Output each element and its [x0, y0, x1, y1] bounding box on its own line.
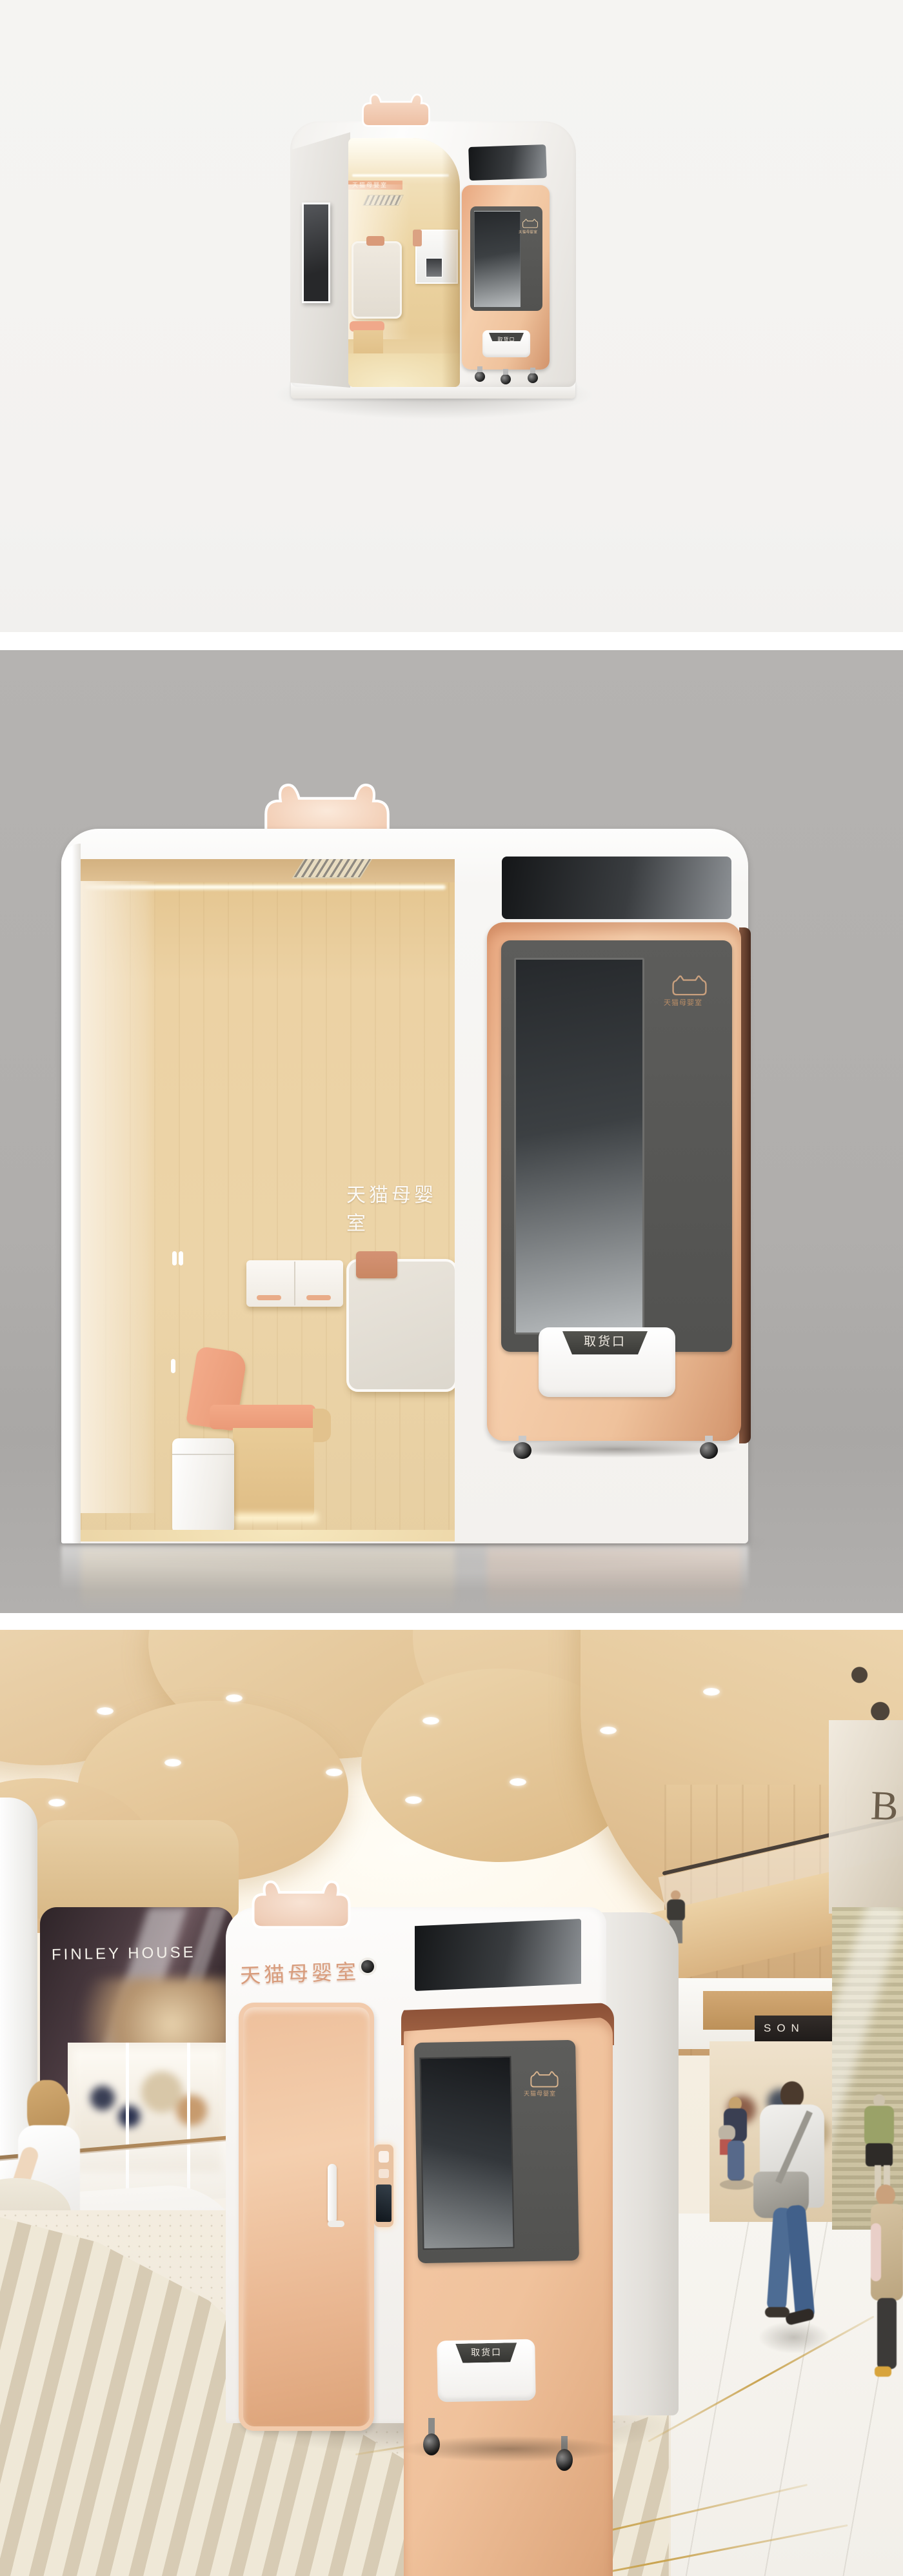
head: [671, 1890, 680, 1900]
towel-on-rail: [366, 236, 384, 246]
left-section-wall: [61, 844, 81, 1543]
downlight-icon: [164, 1759, 181, 1767]
jeans: [728, 2141, 744, 2181]
arch-shading: [442, 138, 460, 387]
person-child-beige-coat: [871, 2185, 903, 2391]
panel-top-isometric-render: 天猫母婴室 天猫母婴室 取货口: [0, 0, 903, 632]
pink-sleeve: [871, 2223, 881, 2281]
head: [876, 2185, 895, 2206]
caster-wheel-icon: [501, 374, 511, 384]
storefront-sign-text: FINLEY HOUSE: [52, 1943, 232, 1965]
machine-touchscreen: [474, 211, 521, 308]
downlight-icon: [405, 1796, 422, 1804]
downlight-icon: [703, 1688, 720, 1696]
pickup-drawer-strip: 取货口: [557, 1331, 653, 1354]
wall-cabinet-divider: [294, 1262, 295, 1305]
downlight-icon: [510, 1778, 526, 1786]
cabinet-handle: [257, 1295, 281, 1300]
machine-under-shadow: [400, 2436, 619, 2462]
booth-interior-cutaway: 天猫母婴室: [348, 138, 460, 387]
mirror-towel: [413, 230, 422, 246]
person-man-walking: [748, 2081, 832, 2378]
pickup-drawer-label: 取货口: [471, 2347, 502, 2358]
downlight-icon: [226, 1694, 243, 1702]
downlight-icon: [326, 1769, 342, 1776]
cabinet-handle: [306, 1295, 331, 1300]
vent-grille-icon: [292, 859, 373, 878]
shoe: [765, 2307, 789, 2317]
machine-logo-caption: 天猫母婴室: [519, 229, 542, 234]
booth-banner-display: [415, 1919, 581, 1991]
panel-bottom-mall-scene: FINLEY HOUSE AROLL: [0, 1630, 903, 2576]
caster-wheel-icon: [475, 372, 485, 382]
glass-monogram-letter: B: [870, 1781, 899, 1830]
interior-ceiling-slope: [81, 859, 455, 882]
tmall-cat-logo-icon: [667, 975, 712, 996]
wall-hook: [171, 1359, 175, 1373]
interior-floor: [81, 1530, 455, 1541]
machine-touchscreen: [419, 2056, 514, 2250]
downlight-icon: [422, 1717, 439, 1725]
mannequin-display: [860, 2094, 899, 2197]
changing-table-folded: [352, 241, 402, 319]
machine-touchscreen: [514, 958, 644, 1334]
floor-reflection-shell: [61, 1545, 748, 1590]
dome-camera-icon: [361, 1960, 374, 1973]
tmall-baby-care-room-composite: 天猫母婴室 天猫母婴室 取货口: [0, 0, 903, 2576]
under-seat-glow: [234, 1513, 318, 1522]
access-panel-screen: [376, 2185, 392, 2222]
downlight-icon: [97, 1707, 114, 1715]
watermark-text: 天猫母婴室: [346, 1179, 455, 1236]
trash-bin-lid-line: [172, 1454, 234, 1455]
machine-under-shadow: [493, 1441, 739, 1458]
pickup-drawer-strip: 取货口: [451, 2343, 522, 2363]
jacket: [667, 1899, 685, 1921]
machine-header-display: [502, 857, 731, 919]
mannequin-skirt: [866, 2143, 893, 2166]
towel-on-rail: [356, 1251, 397, 1278]
cat-ears-sign-icon: [360, 90, 432, 130]
occupancy-icon: [379, 2169, 389, 2178]
jeans-leg: [786, 2204, 815, 2321]
pickup-drawer-label: 取货口: [584, 1335, 626, 1349]
door-handle-foot: [328, 2221, 344, 2227]
downlight-icon: [600, 1727, 617, 1734]
tmall-cat-logo-icon: [526, 2071, 562, 2088]
mirror-tablet-screen: [426, 258, 442, 277]
occupancy-icon: [379, 2151, 389, 2163]
figure-shadow: [720, 2179, 753, 2190]
seat-cushion: [210, 1405, 315, 1429]
storefront-wood-drum: [32, 1820, 239, 1920]
pickup-drawer-strip: 取货口: [487, 333, 526, 341]
led-strip: [352, 174, 449, 177]
door-handle: [328, 2164, 337, 2223]
door-access-panel: [374, 2145, 393, 2227]
side-wall-mirror: [302, 203, 330, 303]
seat-side-arm: [313, 1409, 331, 1442]
pants: [877, 2298, 897, 2369]
wall-hook: [172, 1251, 177, 1265]
machine-header-display: [468, 144, 547, 181]
machine-logo-caption: 天猫母婴室: [664, 997, 722, 1007]
downlight-icon: [48, 1799, 65, 1807]
shutter-shop-window: [832, 1907, 903, 2230]
cat-ears-sign-icon: [249, 1879, 353, 1930]
trash-bin: [172, 1438, 234, 1534]
caster-wheel-icon: [528, 373, 538, 383]
head: [780, 2081, 804, 2107]
shop-sign-dark-band: SON: [755, 2016, 838, 2041]
shop-sign-text: SON: [755, 2016, 838, 2041]
mannequin-jacket: [864, 2106, 894, 2146]
figure-shadow: [759, 2321, 829, 2353]
mannequin-head: [873, 2094, 885, 2107]
machine-logo-caption: 天猫母婴室: [524, 2089, 569, 2097]
panel-middle-front-view: 天猫母婴室 天猫母婴室 取货口: [0, 650, 903, 1613]
seat-wood-base: [233, 1428, 314, 1517]
person-woman-shopper: [717, 2097, 756, 2194]
booth-brand-lettering: 天猫母婴室: [239, 1956, 360, 1989]
booth-interior-cutaway: 天猫母婴室: [81, 859, 455, 1541]
booth-door: [239, 2003, 374, 2431]
interior-left-lit-wall: [81, 881, 157, 1513]
shoulder-bag: [719, 2125, 735, 2141]
changing-table-folded: [346, 1259, 455, 1392]
tmall-cat-logo-icon: [521, 219, 539, 228]
yellow-shoe: [875, 2366, 891, 2377]
